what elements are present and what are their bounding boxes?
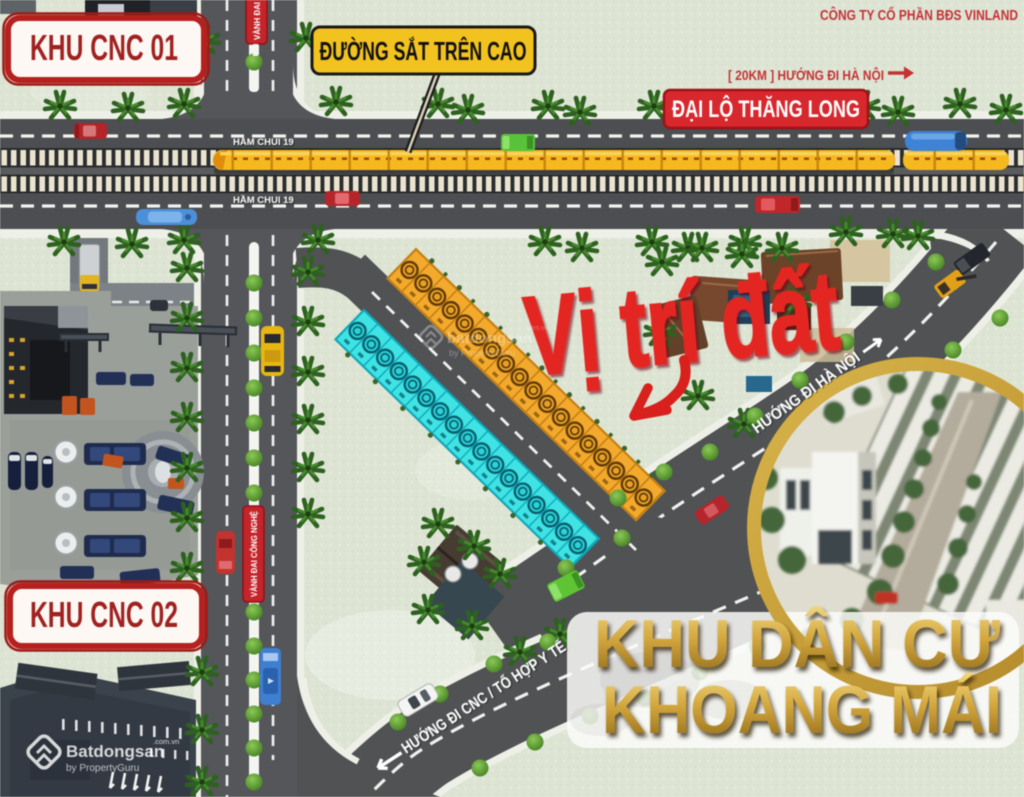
svg-text:VÀNH ĐAI: VÀNH ĐAI bbox=[252, 2, 262, 40]
svg-text:KHOANG MÁI: KHOANG MÁI bbox=[602, 672, 1002, 748]
svg-text:batdongsan: batdongsan bbox=[447, 330, 532, 347]
svg-text:KHU CNC 02: KHU CNC 02 bbox=[30, 594, 178, 635]
svg-text:[ 20KM ] HƯỚNG ĐI HÀ NỘI: [ 20KM ] HƯỚNG ĐI HÀ NỘI bbox=[728, 66, 884, 83]
svg-text:KHU CNC 01: KHU CNC 01 bbox=[30, 27, 178, 68]
svg-text:HẦM CHUI 19: HẦM CHUI 19 bbox=[233, 137, 294, 148]
svg-text:by PropertyGuru: by PropertyGuru bbox=[449, 348, 515, 358]
svg-text:ĐẠI LỘ THĂNG LONG: ĐẠI LỘ THĂNG LONG bbox=[672, 95, 860, 123]
svg-text:KHU DÂN CƯ: KHU DÂN CƯ bbox=[594, 605, 1001, 682]
svg-text:.com.vn: .com.vn bbox=[153, 737, 179, 746]
svg-text:Batdongsan: Batdongsan bbox=[66, 742, 164, 761]
svg-text:HẦM CHUI 19: HẦM CHUI 19 bbox=[233, 195, 294, 206]
svg-text:by PropertyGuru: by PropertyGuru bbox=[66, 763, 139, 774]
svg-text:ĐƯỜNG SẮT TRÊN CAO: ĐƯỜNG SẮT TRÊN CAO bbox=[320, 36, 527, 66]
svg-text:.com.vn: .com.vn bbox=[524, 325, 549, 332]
svg-text:CÔNG TY CỔ PHẦN BĐS VINLAND: CÔNG TY CỔ PHẦN BĐS VINLAND bbox=[820, 6, 1018, 24]
svg-text:VÀNH ĐAI CÔNG NGHỆ: VÀNH ĐAI CÔNG NGHỆ bbox=[250, 510, 259, 597]
